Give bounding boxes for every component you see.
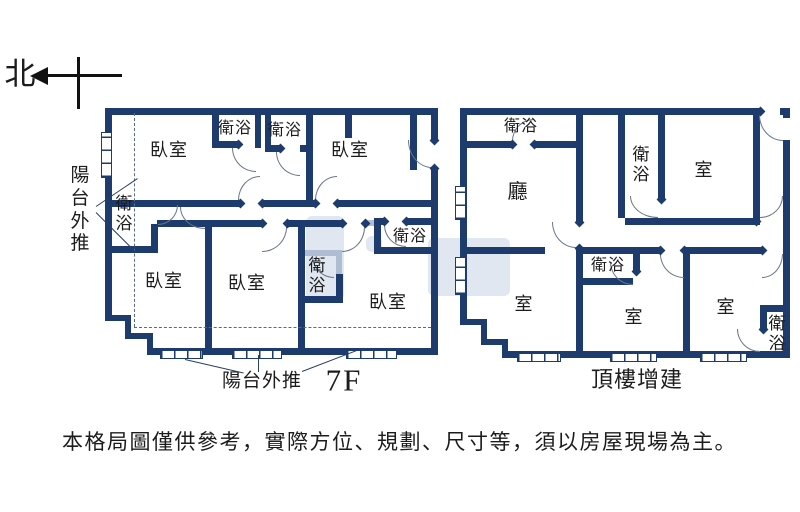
room-label-room: 室 xyxy=(515,295,534,313)
door-arc xyxy=(762,254,783,278)
wall xyxy=(460,247,545,254)
wall xyxy=(684,247,762,254)
window xyxy=(455,186,466,220)
wall xyxy=(576,115,583,222)
door-arc xyxy=(660,254,684,278)
door-arc xyxy=(760,196,783,218)
window xyxy=(517,353,561,362)
wall xyxy=(783,108,790,118)
door-arc xyxy=(737,329,760,352)
wall xyxy=(683,254,690,358)
room-label-bath: 衛浴 xyxy=(504,119,538,135)
window xyxy=(610,353,657,362)
wall xyxy=(583,247,660,254)
room-label-bath: 衛浴 xyxy=(630,145,652,186)
wall xyxy=(460,108,760,115)
room-label-room: 室 xyxy=(625,308,644,326)
window xyxy=(700,353,747,362)
wall xyxy=(618,115,625,218)
wall xyxy=(658,115,665,200)
wall xyxy=(467,141,512,148)
door-arc xyxy=(630,196,658,218)
wall xyxy=(753,115,760,225)
room-label-living: 廳 xyxy=(508,182,529,202)
wall xyxy=(534,141,576,148)
wall xyxy=(625,218,753,225)
room-label-room: 室 xyxy=(717,298,736,316)
door-arc xyxy=(759,115,783,141)
room-label-bath: 衛浴 xyxy=(766,314,788,355)
door-arc xyxy=(552,222,576,248)
disclaimer-text: 本格局圖僅供參考，實際方位、規劃、尺寸等，須以房屋現場為主。 xyxy=(62,426,737,456)
window xyxy=(455,257,466,295)
room-label-room: 室 xyxy=(695,161,714,179)
floor-label-rooftop: 頂樓增建 xyxy=(591,369,683,391)
room-label-bath: 衛浴 xyxy=(591,258,625,274)
floor-plan-canvas: 北 xyxy=(0,0,800,512)
wall xyxy=(576,248,583,358)
